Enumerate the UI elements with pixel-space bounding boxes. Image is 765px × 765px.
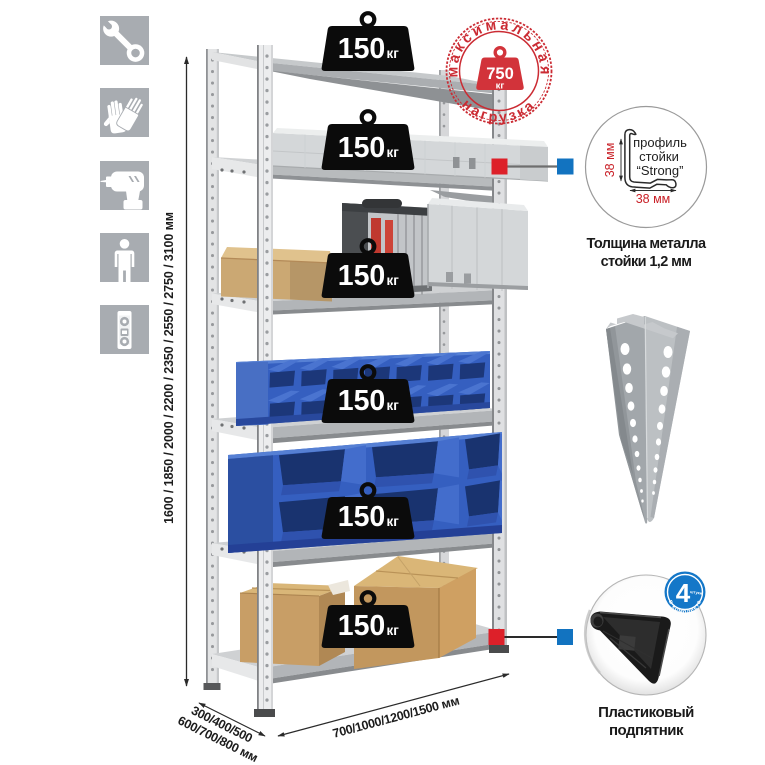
svg-text:подпятник: подпятник [609, 722, 684, 739]
svg-text:“Strong”: “Strong” [637, 163, 684, 178]
svg-text:150: 150 [338, 260, 386, 292]
svg-text:38 мм: 38 мм [603, 143, 617, 178]
svg-text:кг: кг [387, 514, 400, 529]
svg-text:Толщина металла: Толщина металла [587, 236, 707, 252]
svg-text:150: 150 [338, 610, 386, 642]
svg-text:стойки: стойки [639, 149, 679, 164]
svg-text:кг: кг [387, 398, 400, 413]
svg-text:4: 4 [676, 578, 691, 608]
svg-text:кг: кг [496, 81, 505, 92]
svg-text:38 мм: 38 мм [636, 192, 671, 206]
svg-text:150: 150 [338, 501, 386, 533]
svg-text:Пластиковый: Пластиковый [598, 704, 694, 721]
svg-text:1600 / 1850 / 2000 / 2200 / 23: 1600 / 1850 / 2000 / 2200 / 2350 / 2550 … [162, 212, 176, 524]
svg-text:кг: кг [387, 145, 400, 160]
svg-text:кг: кг [387, 46, 400, 61]
svg-text:стойки 1,2 мм: стойки 1,2 мм [601, 254, 692, 270]
svg-text:150: 150 [338, 132, 386, 164]
svg-text:кг: кг [387, 623, 400, 638]
svg-text:кг: кг [387, 273, 400, 288]
svg-text:150: 150 [338, 385, 386, 417]
svg-text:150: 150 [338, 33, 386, 65]
svg-text:профиль: профиль [633, 135, 687, 150]
